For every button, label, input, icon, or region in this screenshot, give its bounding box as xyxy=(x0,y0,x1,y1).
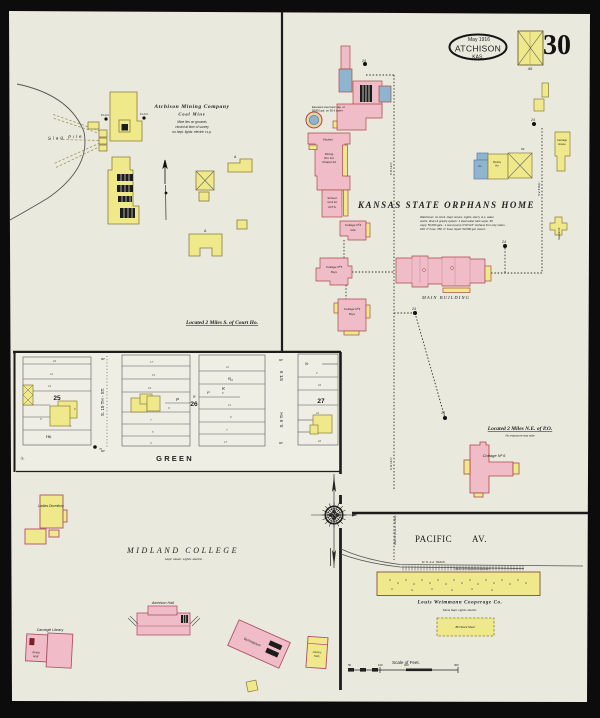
svg-text:C.R.I.& P.: C.R.I.& P. xyxy=(389,457,393,470)
svg-text:Located 2 Miles S. of Court Ho: Located 2 Miles S. of Court Ho. xyxy=(185,320,258,326)
svg-text:S. 10 TH - ST.: S. 10 TH - ST. xyxy=(100,388,105,416)
svg-text:14: 14 xyxy=(441,411,445,415)
svg-text:10: 10 xyxy=(230,378,234,382)
svg-text:Literary: Literary xyxy=(313,650,323,655)
svg-text:GREEN: GREEN xyxy=(156,454,194,463)
svg-text:12: 12 xyxy=(50,372,54,376)
svg-text:50000 gal. on 90 ft tower: 50000 gal. on 90 ft tower xyxy=(312,109,343,113)
svg-text:Stone Dept. Lights: electric.: Stone Dept. Lights: electric. xyxy=(443,608,477,612)
svg-text:Boys: Boys xyxy=(349,312,355,316)
svg-text:WEST ATCHISON STORE RWY: WEST ATCHISON STORE RWY xyxy=(455,568,490,571)
svg-text:Bbl Stock Shed: Bbl Stock Shed xyxy=(455,625,475,629)
svg-text:1st & 2d: 1st & 2d xyxy=(327,200,337,204)
svg-text:F.H.O.: F.H.O. xyxy=(101,113,110,117)
svg-text:N·: N· xyxy=(305,361,309,366)
svg-text:Mine lies on grounds: Mine lies on grounds xyxy=(177,120,207,124)
svg-text:closed at time of survey: closed at time of survey xyxy=(175,125,209,129)
svg-text:Carnegie Library: Carnegie Library xyxy=(37,628,64,632)
svg-text:Superint'dt: Superint'dt xyxy=(557,227,561,240)
svg-text:P: P xyxy=(207,390,210,395)
svg-text:House: House xyxy=(558,142,566,146)
svg-text:May 1916: May 1916 xyxy=(468,37,490,43)
svg-text:PACIFIC: PACIFIC xyxy=(415,534,452,544)
svg-text:Boys: Boys xyxy=(331,270,337,274)
svg-text:15: 15 xyxy=(152,373,156,377)
svg-text:Cottage Nº5: Cottage Nº5 xyxy=(326,265,343,269)
svg-text:100: 2" hose: 350: 2" hose: li: 100: 2" hose: 350: 2" hose: liquid: 50,0… xyxy=(420,227,486,231)
svg-text:14: 14 xyxy=(48,384,52,388)
svg-text:Ladies Dormitory: Ladies Dormitory xyxy=(38,504,64,508)
svg-text:17: 17 xyxy=(150,360,154,364)
svg-text:Girls: Girls xyxy=(350,228,356,232)
svg-text:KAS.: KAS. xyxy=(472,55,483,61)
svg-text:300: 300 xyxy=(454,663,459,667)
svg-text:Halls: Halls xyxy=(314,654,321,658)
svg-text:ACT'G: ACT'G xyxy=(328,205,336,209)
svg-text:83: 83 xyxy=(521,147,525,151)
svg-text:P: P xyxy=(176,397,179,402)
svg-text:Chapel 2d: Chapel 2d xyxy=(322,160,336,164)
svg-text:School: School xyxy=(327,196,337,200)
svg-text:10: 10 xyxy=(53,359,57,363)
svg-text:N: N xyxy=(331,512,337,521)
svg-text:Cottage Nº 6: Cottage Nº 6 xyxy=(483,453,507,458)
svg-text:10: 10 xyxy=(318,383,322,387)
svg-text:Cottage Nº4: Cottage Nº4 xyxy=(345,223,362,227)
svg-text:Ho: Ho xyxy=(495,164,499,168)
svg-text:50: 50 xyxy=(348,663,352,667)
svg-text:24: 24 xyxy=(501,240,506,244)
svg-text:F.H.O.: F.H.O. xyxy=(140,112,149,116)
svg-text:No exposure any side: No exposure any side xyxy=(505,434,534,438)
svg-text:12: 12 xyxy=(226,365,230,369)
svg-text:13: 13 xyxy=(148,386,152,390)
svg-text:Carriage: Carriage xyxy=(557,138,568,142)
svg-text:Hept: steam. Lights: electric.: Hept: steam. Lights: electric. xyxy=(165,557,203,561)
svg-text:45: 45 xyxy=(528,66,533,71)
svg-text:24: 24 xyxy=(361,59,366,63)
svg-text:17: 17 xyxy=(224,440,228,444)
svg-text:no hept. lights: electric l.s.: no hept. lights: electric l.s.p. xyxy=(172,130,211,134)
svg-text:24: 24 xyxy=(411,307,416,311)
svg-text:100: 100 xyxy=(378,663,383,667)
svg-text:60': 60' xyxy=(279,358,283,362)
svg-text:60': 60' xyxy=(279,441,283,445)
svg-text:Atchison Hall: Atchison Hall xyxy=(151,601,174,605)
svg-text:76: 76 xyxy=(99,447,103,451)
svg-text:2: 2 xyxy=(315,371,318,375)
svg-text:10: 10 xyxy=(318,439,322,443)
svg-text:12: 12 xyxy=(316,411,320,415)
svg-text:ST. 9: ST. 9 xyxy=(279,370,284,381)
svg-text:AV.: AV. xyxy=(472,534,487,544)
svg-text:24: 24 xyxy=(530,118,535,122)
svg-text:Kitchen: Kitchen xyxy=(323,138,333,142)
svg-text:Cottage Nº3: Cottage Nº3 xyxy=(344,307,361,311)
svg-text:Atchison Mining Company: Atchison Mining Company xyxy=(153,104,229,110)
svg-text:30: 30 xyxy=(543,30,571,61)
svg-text:Poultry: Poultry xyxy=(493,160,502,164)
svg-text:S.V. 8 Disc: S.V. 8 Disc xyxy=(537,182,541,196)
svg-text:11: 11 xyxy=(228,403,231,407)
svg-text:26: 26 xyxy=(190,401,198,408)
svg-text:60': 60' xyxy=(101,357,105,361)
svg-text:Louis Weimmann Cooperage Co.: Louis Weimmann Cooperage Co. xyxy=(417,601,503,606)
svg-text:27: 27 xyxy=(317,398,325,405)
svg-text:Located 2 Miles N.E. of P.O.: Located 2 Miles N.E. of P.O. xyxy=(487,426,553,432)
svg-text:M. O. & A. TRACK: M. O. & A. TRACK xyxy=(422,560,445,564)
svg-text:Hall: Hall xyxy=(33,654,39,658)
svg-text:C.R.I.& P.: C.R.I.& P. xyxy=(389,162,393,175)
svg-text:S. 9 TH: S. 9 TH xyxy=(279,412,284,427)
svg-text:KANSAS STATE ORPHANS HOME: KANSAS STATE ORPHANS HOME xyxy=(357,200,535,210)
svg-text:ATCHISON: ATCHISON xyxy=(455,44,501,54)
svg-text:Coal Mine: Coal Mine xyxy=(178,112,205,117)
svg-text:200: 200 xyxy=(404,663,409,667)
svg-text:MAIN BUILDING: MAIN BUILDING xyxy=(421,295,470,300)
svg-text:MIDLAND COLLEGE: MIDLAND COLLEGE xyxy=(126,546,239,555)
